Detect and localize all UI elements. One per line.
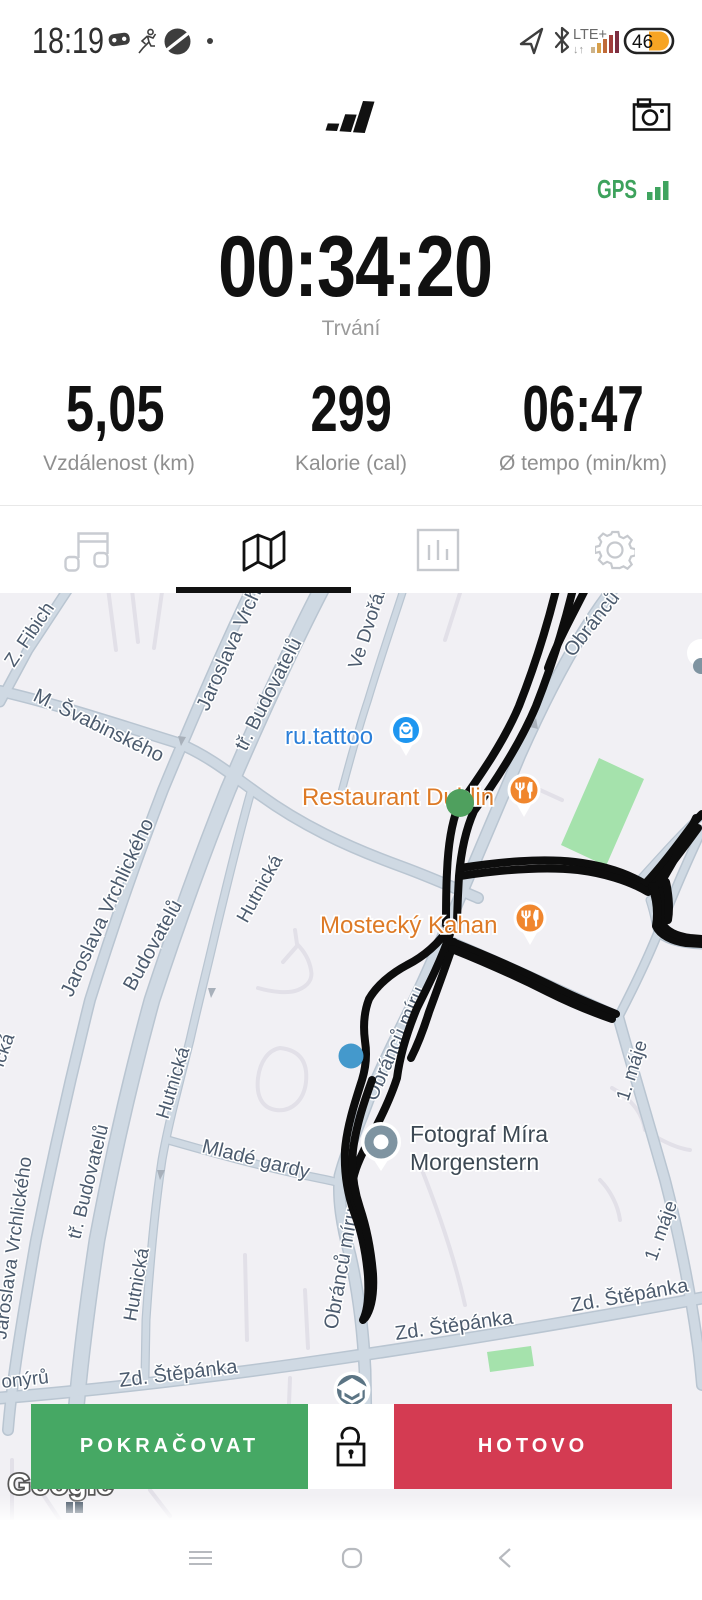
svg-text:Mostecký Kahan: Mostecký Kahan (320, 912, 497, 939)
svg-text:Morgenstern: Morgenstern (410, 1149, 539, 1175)
svg-text:46: 46 (632, 32, 653, 53)
svg-text:Fotograf Míra: Fotograf Míra (410, 1121, 548, 1147)
svg-text:ru.tattoo: ru.tattoo (285, 723, 373, 750)
svg-text:↓↑: ↓↑ (573, 44, 584, 56)
svg-text:LTE+: LTE+ (573, 27, 607, 43)
